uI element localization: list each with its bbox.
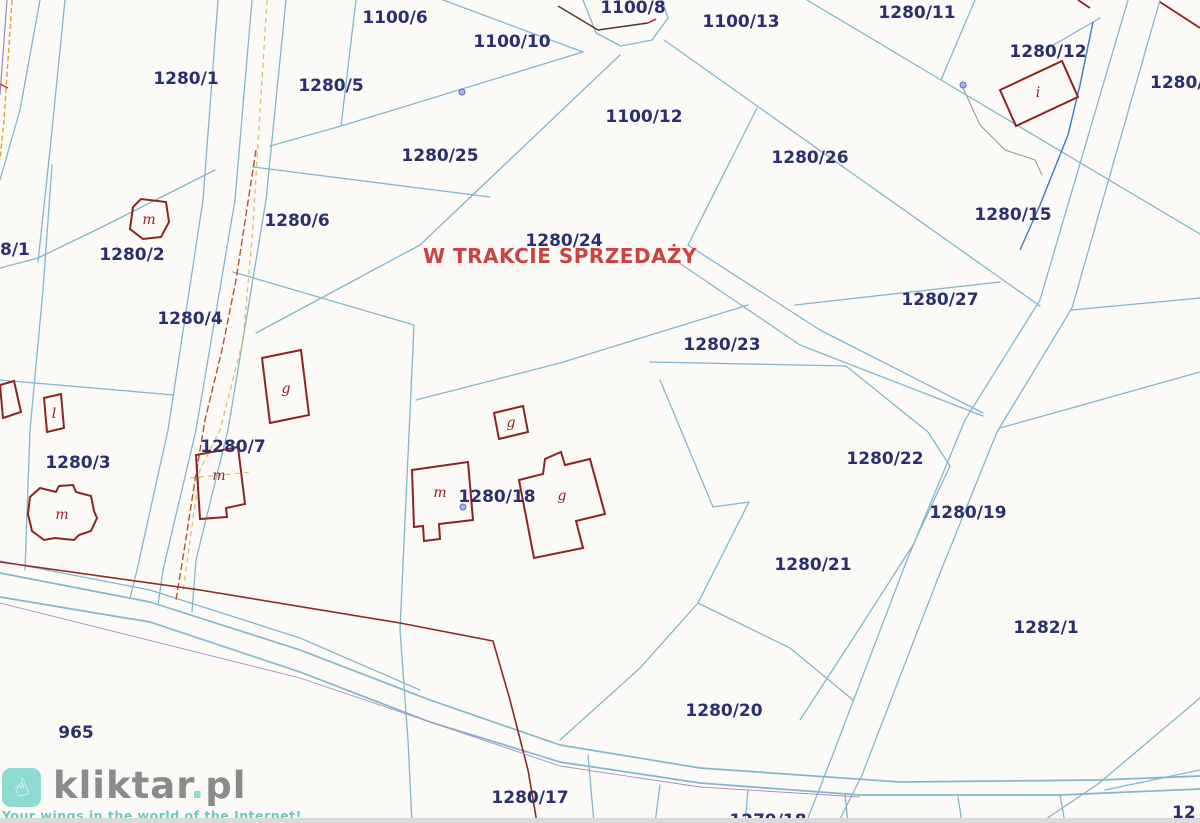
- parcel-number-label: 1100/10: [473, 32, 550, 52]
- kliktar-watermark: ☝ kliktar.pl Your wings in the world of …: [2, 765, 302, 823]
- parcel-number-label: 8/1: [0, 240, 30, 260]
- kliktar-wordmark: kliktar.pl: [53, 766, 246, 806]
- building-use-letter: g: [507, 415, 516, 431]
- parcel-number-label: 1280/2: [99, 245, 164, 265]
- power-line-red: [176, 150, 256, 600]
- parcel-number-label: 1100/12: [605, 107, 682, 127]
- hand-cursor-icon: ☝: [11, 774, 32, 801]
- cable-curve-gray: [963, 88, 1042, 175]
- parcel-boundary-line: [0, 380, 174, 395]
- parcel-number-label: 1280/11: [878, 3, 955, 23]
- building-use-letter: m: [433, 485, 446, 501]
- parcel-number-label: 1280/15: [974, 205, 1051, 225]
- gas-line-orange: [0, 0, 12, 160]
- red-corner-dash: [1078, 0, 1090, 8]
- parcel-boundary-line: [253, 167, 490, 197]
- survey-point-icon: [960, 82, 966, 88]
- parcel-boundary-line: [1098, 698, 1200, 784]
- parcel-boundary-line: [838, 0, 1160, 823]
- parcel-number-label: 1100/6: [362, 8, 427, 28]
- parcel-boundary-line: [0, 573, 1200, 782]
- brand-text: kliktar: [53, 764, 190, 807]
- red-tick: [648, 19, 656, 23]
- bottom-edge-strip: [0, 818, 1200, 823]
- parcel-boundary-line: [1072, 298, 1200, 310]
- parcel-number-label: 1280/18: [458, 487, 535, 507]
- parcel-boundary-line: [130, 0, 218, 598]
- parcel-number-label: 965: [58, 723, 94, 743]
- parcel-number-label: 1280/26: [771, 148, 848, 168]
- brand-dot: .: [190, 764, 205, 807]
- parcel-boundary-line: [698, 603, 853, 700]
- parcel-boundary-line: [400, 325, 414, 823]
- parcel-boundary-line: [38, 0, 65, 262]
- brand-tld: pl: [205, 764, 246, 807]
- parcel-number-label: 1280/21: [774, 555, 851, 575]
- building-outline: [0, 381, 21, 418]
- parcel-number-label: 1280/1: [153, 69, 218, 89]
- cadastral-map: mglmmgmgi1100/61100/81100/131280/111280/…: [0, 0, 1200, 823]
- building-use-letter: g: [282, 381, 291, 397]
- parcel-number-label: 1280/25: [401, 146, 478, 166]
- parcel-number-label: 1280/16: [1150, 73, 1200, 93]
- parcel-boundary-line: [806, 0, 1128, 823]
- parcel-boundary-line: [660, 380, 749, 507]
- parcel-number-label: 1280/20: [685, 701, 762, 721]
- parcel-number-label: 1280/12: [1009, 42, 1086, 62]
- parcel-boundary-line: [588, 755, 594, 823]
- survey-point-icon: [459, 89, 465, 95]
- parcel-number-label: 1280/4: [157, 309, 223, 329]
- building-use-letter: l: [52, 406, 56, 422]
- parcel-boundary-line: [1000, 372, 1200, 428]
- parcel-boundary-line: [192, 0, 286, 612]
- parcel-boundary-line: [158, 0, 252, 605]
- parcel-boundary-line: [800, 466, 950, 720]
- building-use-letter: m: [212, 468, 225, 484]
- building-use-letter: m: [55, 507, 68, 523]
- parcel-number-label: 1280/27: [901, 290, 978, 310]
- building-use-letter: m: [142, 212, 155, 228]
- sale-status-label: W TRAKCIE SPRZEDAŻY: [423, 244, 697, 268]
- parcel-boundary-line: [0, 561, 420, 690]
- parcel-number-label: 1280/3: [45, 453, 110, 473]
- parcel-boundary-line: [341, 0, 356, 126]
- parcel-boundary-line: [688, 245, 983, 413]
- red-corner-line: [1160, 2, 1200, 28]
- parcel-boundary-line: [270, 52, 583, 146]
- parcel-boundary-line: [233, 272, 414, 325]
- parcel-number-label: 1280/5: [298, 76, 363, 96]
- building-use-letter: g: [558, 488, 567, 504]
- kliktar-logo-box: ☝: [2, 768, 41, 807]
- parcel-number-label: 1280/17: [491, 788, 568, 808]
- parcel-number-label: 1280/6: [264, 211, 329, 231]
- parcel-number-label: 1100/13: [702, 12, 779, 32]
- parcel-number-label: 1280/19: [929, 503, 1006, 523]
- parcel-number-label: 1282/1: [1013, 618, 1078, 638]
- parcel-number-label: 1100/8: [600, 0, 665, 18]
- cadastral-map-svg: mglmmgmgi1100/61100/81100/131280/111280/…: [0, 0, 1200, 823]
- parcel-number-label: 1280/7: [200, 437, 265, 457]
- parcel-number-label: 1280/23: [683, 335, 760, 355]
- parcel-number-label: 1280/22: [846, 449, 923, 469]
- parcel-boundary-line: [688, 108, 757, 245]
- building-use-letter: i: [1036, 85, 1040, 101]
- parcel-boundary-line: [807, 0, 1200, 234]
